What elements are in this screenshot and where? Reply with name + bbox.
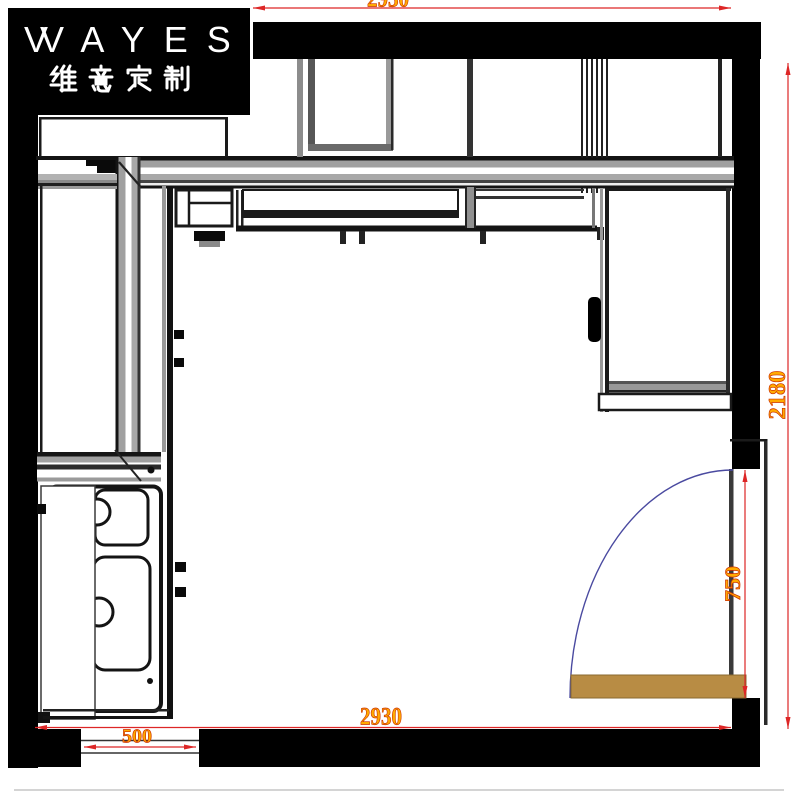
svg-text:2930: 2930: [367, 0, 409, 13]
svg-text:2180: 2180: [765, 371, 791, 420]
svg-text:2930: 2930: [360, 704, 402, 731]
svg-text:VVAYES: VVAYES: [24, 19, 250, 60]
svg-text:750: 750: [720, 566, 745, 602]
svg-text:500: 500: [122, 726, 152, 748]
